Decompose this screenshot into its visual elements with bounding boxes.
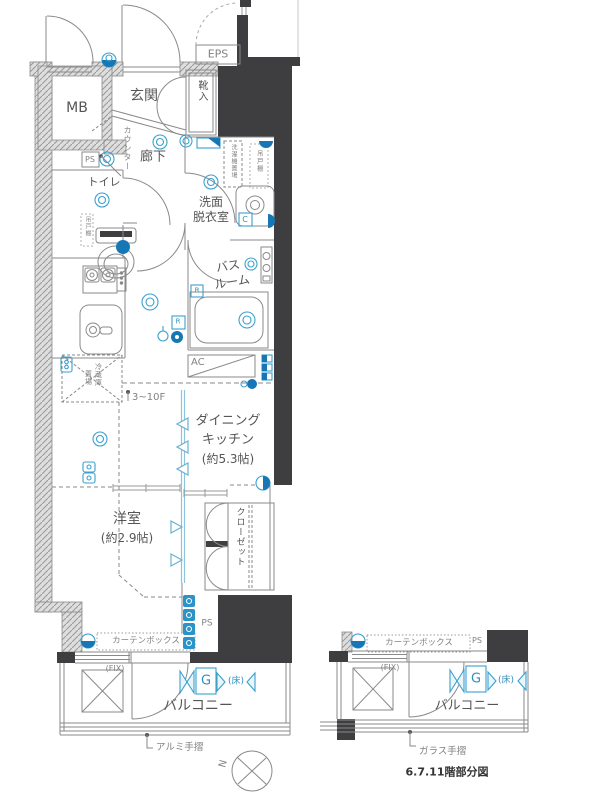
room-label-dk-1: ダイニング: [195, 415, 260, 428]
room-label-entrance: 玄関: [130, 89, 158, 103]
balcony-lamp-icon: [351, 634, 365, 648]
partial-plan-title: 6.7.11階部分図: [406, 767, 489, 778]
label-hanging-cupboard-1: 吊戸棚: [84, 216, 90, 237]
label-floor-range: 3~10F: [132, 393, 165, 403]
outlet-icon: [83, 462, 95, 472]
outlet-icon: [241, 379, 257, 389]
label-ps-2: PS: [201, 620, 212, 629]
label-fix-1: (FIX): [106, 665, 125, 673]
outlet-icon: [83, 473, 95, 483]
label-fridge-1: 冷蔵庫: [95, 363, 102, 387]
label-washer-space: 洗濯機置場: [230, 144, 236, 179]
ceiling-light-icon: [95, 193, 109, 207]
wall-light-icon: [256, 476, 270, 490]
ceiling-light-icon: [245, 258, 257, 270]
label-ps-1: PS: [85, 156, 95, 164]
room-label-dk-2: キッチン: [202, 434, 254, 447]
room-label-washroom-1: 洗面: [199, 196, 223, 208]
label-ac: AC: [191, 358, 205, 368]
room-label-balcony-2: バルコニー: [435, 700, 500, 713]
fan-icon: [116, 240, 130, 254]
label-curtain-box-1: カーテンボックス: [112, 637, 180, 646]
room-label-dk-3: (約5.3帖): [202, 453, 254, 465]
floor-plan-page: MB 玄関 靴入 EPS 廊下 カウンター PS トイレ 吊戸棚 洗面 脱衣室 …: [0, 0, 600, 800]
room-label-bathroom-1: バス: [215, 258, 241, 274]
room-label-balcony-1: バルコニー: [163, 699, 233, 713]
ceiling-light-icon: [204, 175, 218, 189]
label-g-mark-2: G: [471, 673, 481, 686]
room-label-bedroom-1: 洋室: [113, 512, 141, 526]
wall-detail-lines: [242, 0, 298, 57]
room-label-closet: クローゼット: [235, 507, 244, 567]
ceiling-light-icon: [93, 432, 107, 446]
doorbell-icon: [102, 53, 116, 67]
outlet-icon: [61, 357, 72, 372]
room-label-mb: MB: [66, 101, 88, 115]
room-label-toilet: トイレ: [88, 177, 121, 188]
label-hanging-cupboard-2: 吊戸棚: [256, 150, 263, 173]
label-ps-3: PS: [472, 637, 482, 645]
downlight-icon: [259, 141, 273, 148]
label-r-mark-kitchen: R: [176, 319, 181, 326]
outlet-icon: [262, 373, 272, 380]
outlet-column: [183, 595, 195, 649]
water-heater-icon: [450, 666, 526, 692]
label-floor-mark-2: (床): [498, 677, 514, 686]
label-floor-mark-1: (床): [228, 678, 244, 687]
room-label-eps: EPS: [208, 49, 229, 60]
outlet-icon: [262, 364, 272, 371]
ceiling-light-icon: [142, 294, 158, 310]
label-fridge-2: 置場: [85, 370, 92, 386]
room-label-bedroom-2: (約2.9帖): [101, 532, 153, 544]
label-g-mark-1: G: [201, 675, 211, 688]
outlet-icon: [262, 355, 272, 362]
compass-icon: [232, 751, 272, 791]
room-label-shoe-box: 靴入: [196, 80, 206, 102]
remote-icon: [171, 331, 183, 343]
shelf-icon: [197, 138, 220, 148]
room-label-washroom-2: 脱衣室: [193, 211, 229, 223]
balcony-lamp-icon: [81, 634, 95, 648]
label-aluminum-rail: アルミ手摺: [156, 743, 203, 753]
label-c-mark: C: [242, 216, 248, 224]
room-label-hallway: 廊下: [140, 151, 166, 164]
solid-walls: [57, 0, 528, 740]
ceiling-light-icon: [239, 312, 255, 328]
label-r-mark-bath: R: [195, 288, 200, 295]
label-glass-rail: ガラス手摺: [419, 747, 466, 757]
label-curtain-box-2: カーテンボックス: [385, 639, 453, 648]
label-counter: カウンター: [123, 126, 131, 171]
beam-bars: [113, 484, 227, 497]
ceiling-light-icon: [153, 135, 167, 149]
label-fix-2: (FIX): [381, 664, 400, 672]
thermostat-icon: [158, 326, 168, 341]
